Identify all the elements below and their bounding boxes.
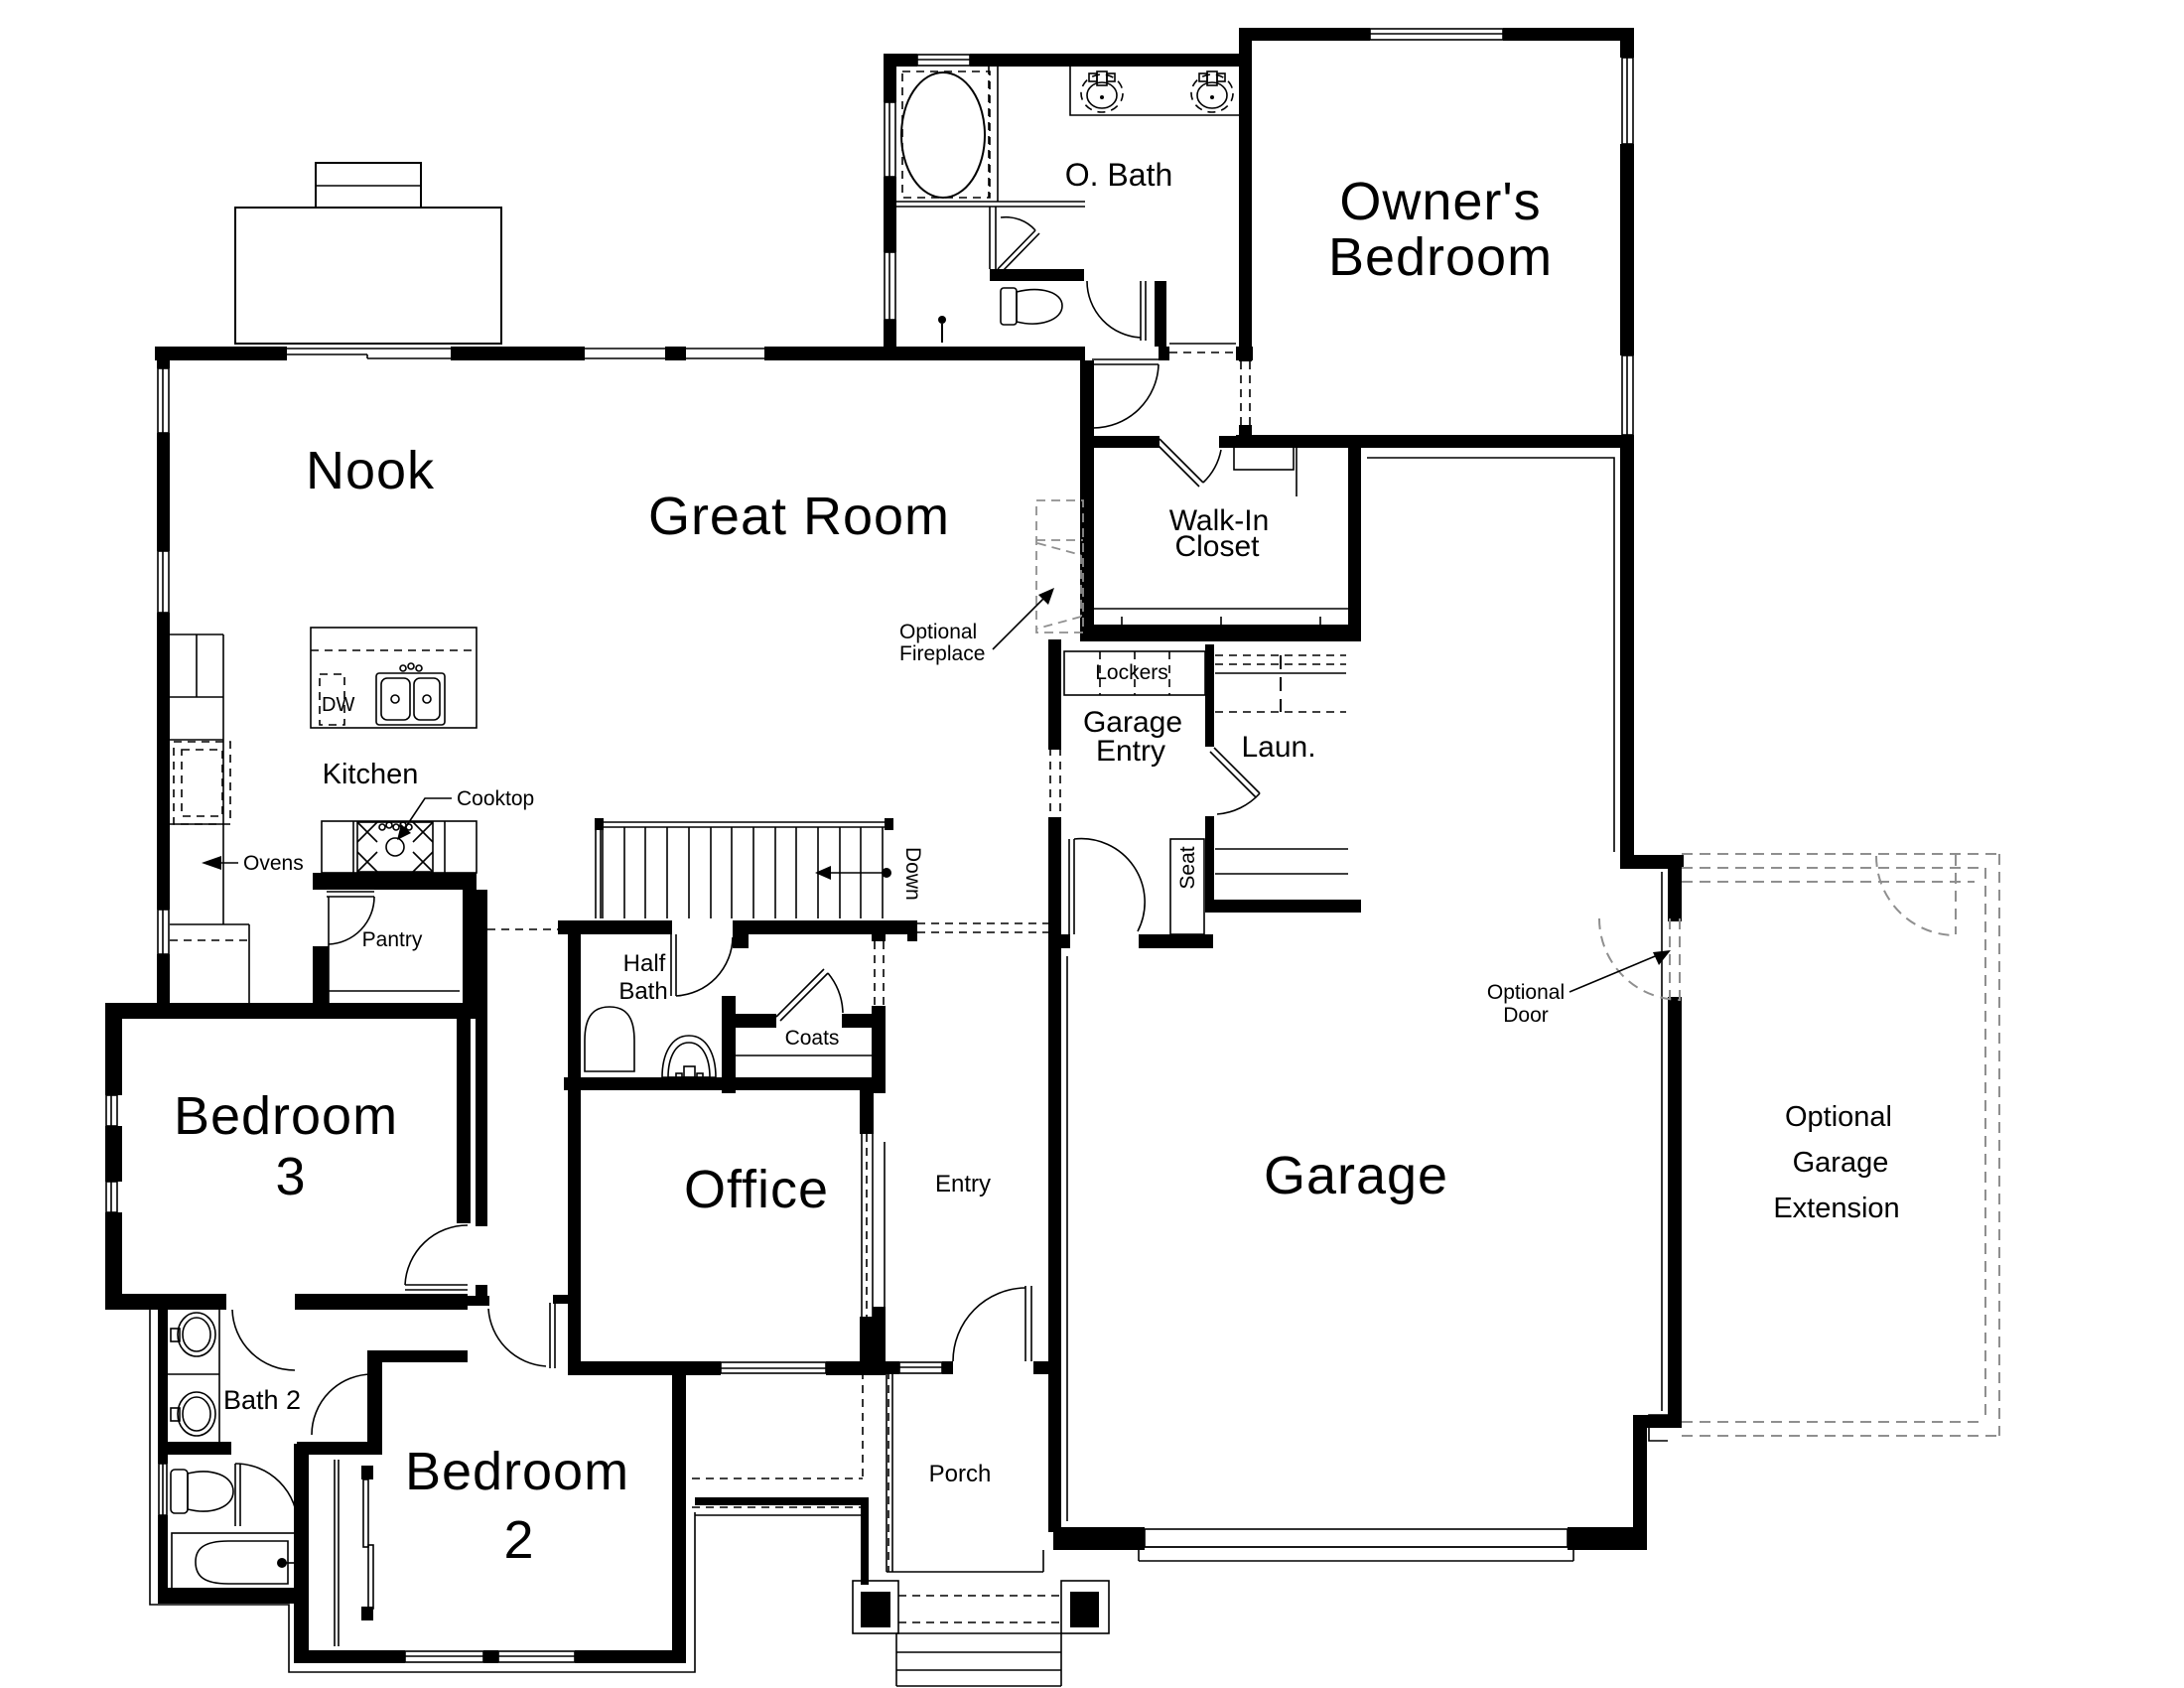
- svg-text:Bath: Bath: [618, 978, 667, 1005]
- svg-text:Bath 2: Bath 2: [223, 1385, 301, 1415]
- svg-text:Coats: Coats: [785, 1027, 840, 1050]
- svg-text:Optional: Optional: [1487, 981, 1565, 1004]
- svg-text:Optional: Optional: [899, 621, 977, 643]
- svg-text:Closet: Closet: [1174, 530, 1260, 563]
- svg-text:Entry: Entry: [1096, 735, 1165, 768]
- svg-text:Garage: Garage: [1264, 1146, 1448, 1205]
- svg-text:Kitchen: Kitchen: [323, 759, 419, 790]
- svg-text:Garage: Garage: [1793, 1147, 1889, 1179]
- svg-text:2: 2: [503, 1510, 534, 1570]
- svg-text:Bedroom: Bedroom: [174, 1086, 398, 1146]
- svg-text:O. Bath: O. Bath: [1065, 157, 1173, 193]
- svg-text:Optional: Optional: [1785, 1101, 1892, 1133]
- svg-text:Seat: Seat: [1176, 846, 1199, 889]
- svg-text:Great Room: Great Room: [648, 487, 950, 546]
- svg-text:Bedroom: Bedroom: [405, 1442, 629, 1501]
- svg-text:DW: DW: [322, 694, 354, 716]
- svg-text:Lockers: Lockers: [1095, 661, 1168, 684]
- svg-text:Door: Door: [1503, 1004, 1549, 1027]
- svg-text:Bedroom: Bedroom: [1328, 227, 1553, 287]
- svg-text:Laun.: Laun.: [1241, 731, 1315, 764]
- svg-text:Cooktop: Cooktop: [457, 787, 534, 810]
- svg-text:Down: Down: [901, 847, 924, 901]
- svg-text:Porch: Porch: [929, 1461, 992, 1487]
- svg-text:Ovens: Ovens: [243, 852, 304, 875]
- svg-text:Owner's: Owner's: [1339, 172, 1541, 231]
- svg-text:3: 3: [275, 1147, 306, 1206]
- svg-text:Pantry: Pantry: [362, 928, 423, 951]
- svg-text:Half: Half: [623, 950, 666, 977]
- svg-text:Fireplace: Fireplace: [899, 642, 985, 665]
- svg-text:Office: Office: [684, 1160, 829, 1219]
- svg-text:Extension: Extension: [1773, 1193, 1899, 1224]
- svg-text:Nook: Nook: [306, 441, 435, 500]
- svg-text:Entry: Entry: [935, 1171, 991, 1197]
